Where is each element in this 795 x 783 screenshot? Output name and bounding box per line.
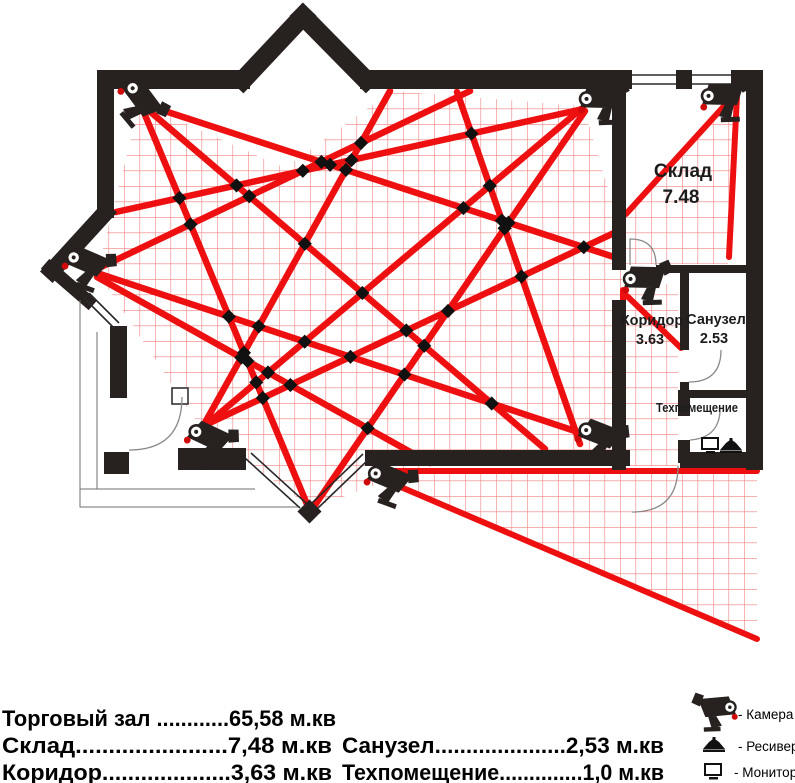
device-legend-receiver-label: - Ресивер <box>738 739 795 754</box>
monitor-icon <box>702 438 718 454</box>
device-legend-monitor-label: - Монитор <box>734 765 795 780</box>
receiver-icon <box>720 438 742 453</box>
room-label-tehroom: Техпомещение <box>656 400 738 415</box>
monitor-icon <box>705 764 721 780</box>
floor-plan-page: Склад 7.48 Коридор 3.63 Санузел 2.53 Тех… <box>0 0 795 783</box>
room-area-koridor: 3.63 <box>636 332 664 348</box>
floor-plan-svg: Склад 7.48 Коридор 3.63 Санузел 2.53 Тех… <box>0 0 795 783</box>
area-row-koridor: Коридор....................3,63 м.кв <box>2 760 332 783</box>
area-row-torgovy-zal: Торговый зал ............65,58 м.кв <box>2 706 336 731</box>
door-arc-tehroom <box>690 412 720 440</box>
area-row-tehroom: Техпомещение..............1,0 м.кв <box>342 760 664 783</box>
camera-icon <box>688 691 741 736</box>
tech-room-equipment <box>702 438 742 454</box>
room-label-sklad: Склад <box>654 161 712 182</box>
area-row-sanuzel: Санузел.....................2,53 м.кв <box>342 733 664 758</box>
receiver-icon <box>703 737 725 752</box>
room-area-sanuzel: 2.53 <box>700 331 728 347</box>
room-label-sanuzel: Санузел <box>686 312 746 328</box>
coverage-grid-corridor <box>624 284 678 466</box>
device-legend-camera-label: - Камера <box>738 707 794 722</box>
area-row-sklad: Склад.......................7,48 м.кв <box>2 733 332 758</box>
device-legend: - Камера - Ресивер - Монитор <box>688 691 795 780</box>
door-arc-entrance <box>129 397 182 450</box>
room-label-koridor: Коридор <box>621 313 684 329</box>
room-area-sklad: 7.48 <box>663 187 700 208</box>
area-table: Торговый зал ............65,58 м.кв Скла… <box>2 706 664 783</box>
door-arc-sanuzel <box>689 350 721 382</box>
column-post <box>172 388 188 404</box>
